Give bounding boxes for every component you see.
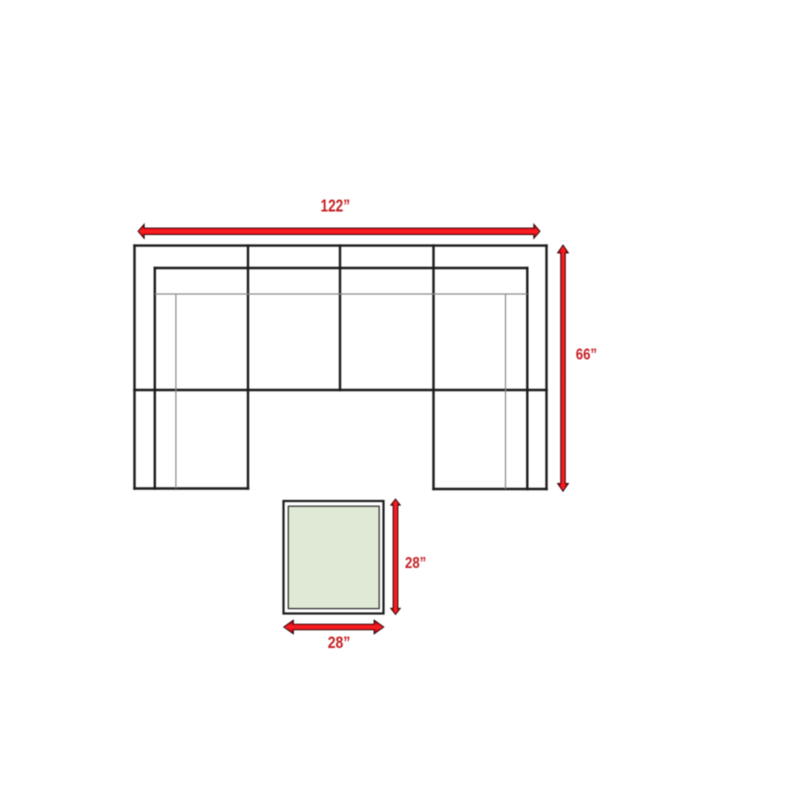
svg-text:122”: 122” bbox=[321, 196, 351, 216]
svg-text:66”: 66” bbox=[576, 346, 597, 363]
svg-text:28”: 28” bbox=[405, 555, 426, 572]
svg-text:28”: 28” bbox=[328, 634, 351, 652]
